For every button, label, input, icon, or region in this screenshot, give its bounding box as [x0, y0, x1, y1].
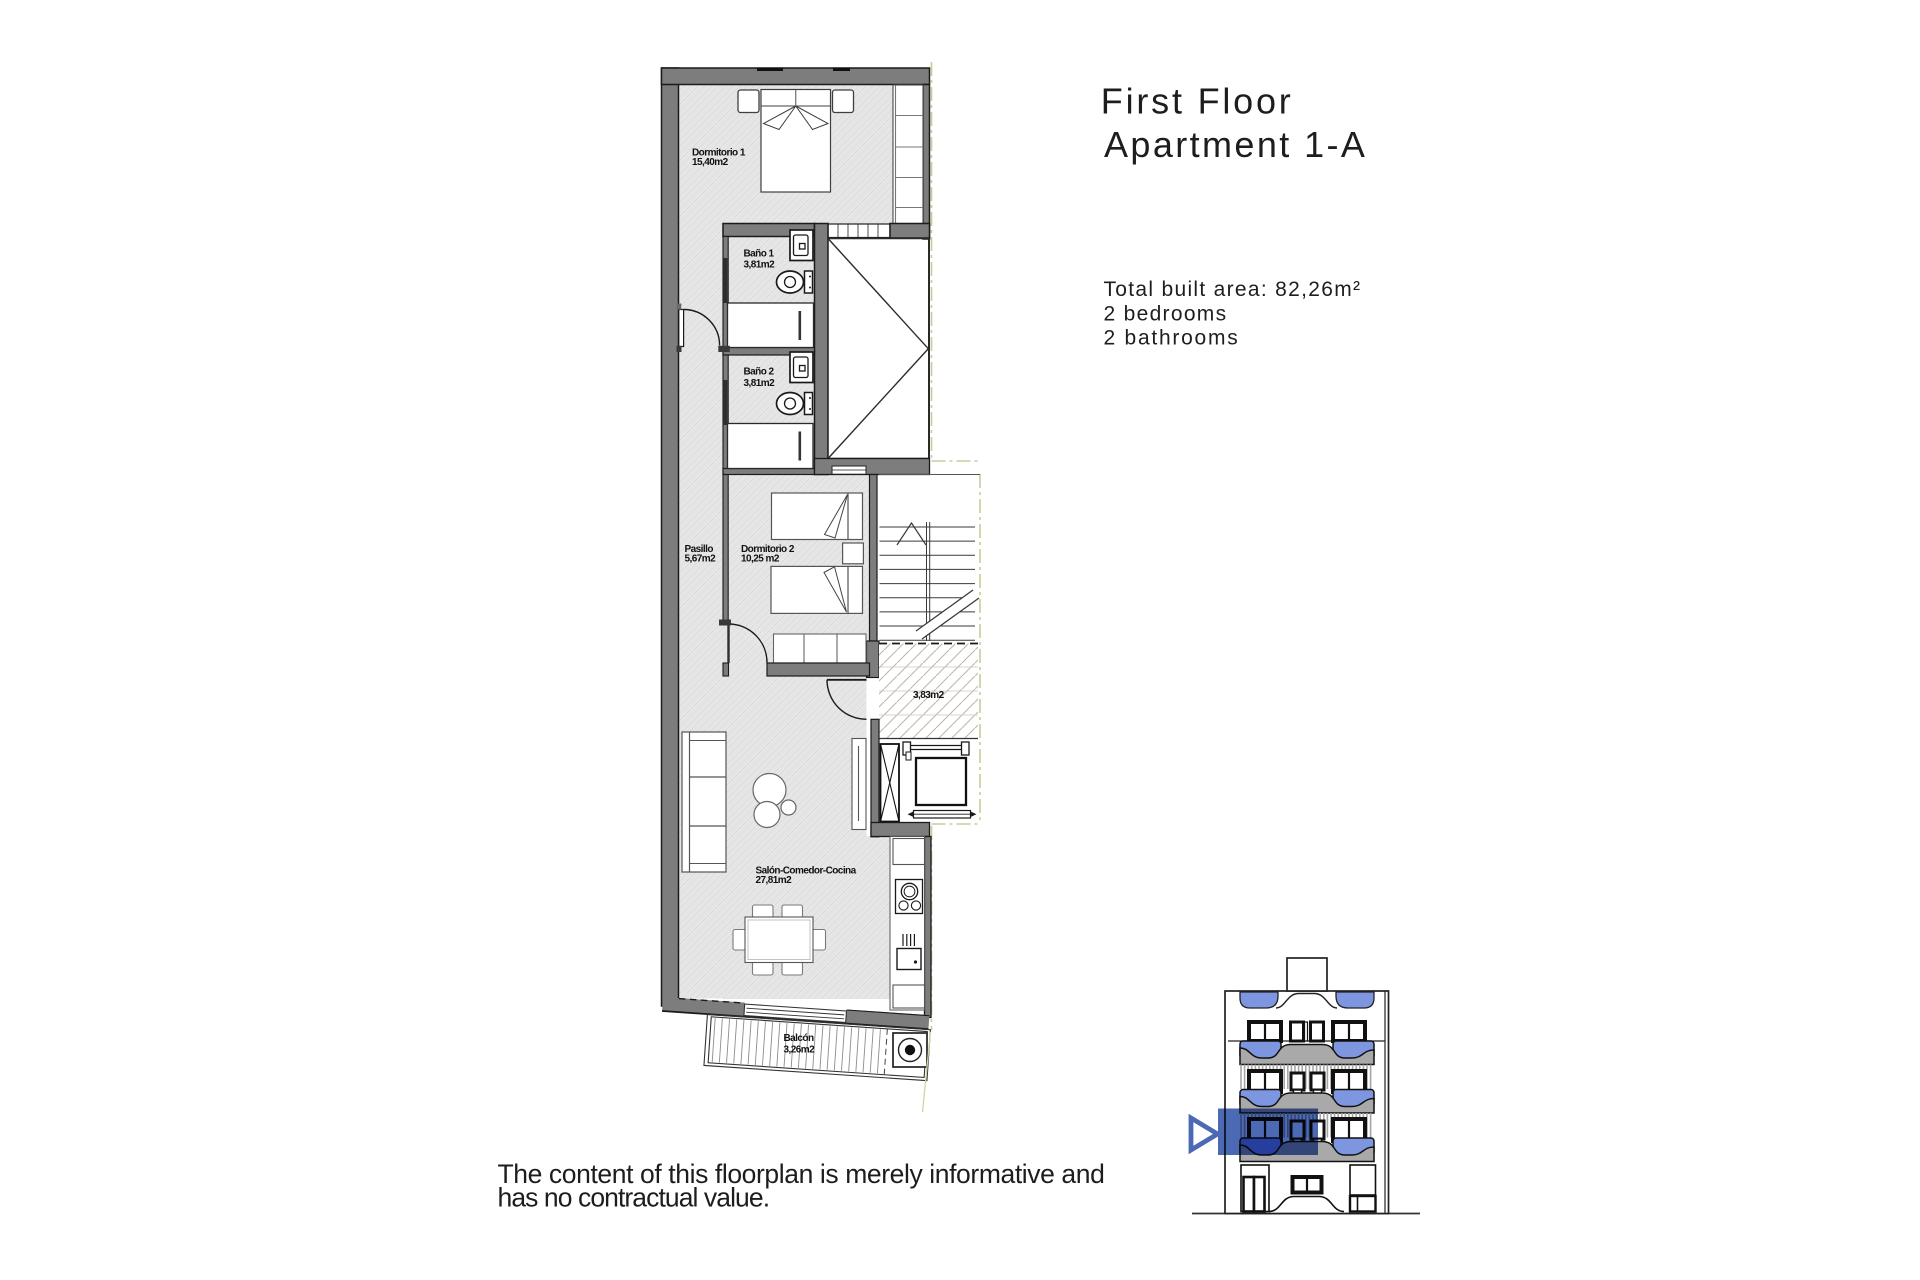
svg-text:First Floor: First Floor: [1101, 81, 1294, 122]
svg-text:3,83m2: 3,83m2: [913, 690, 945, 701]
svg-text:15,40m2: 15,40m2: [692, 157, 729, 168]
svg-text:Total built area: 82,26m²: Total built area: 82,26m²: [1104, 278, 1362, 301]
svg-text:Apartment 1-A: Apartment 1-A: [1104, 124, 1367, 165]
svg-text:3,81m2: 3,81m2: [744, 260, 776, 271]
svg-text:3,26m2: 3,26m2: [784, 1045, 816, 1056]
svg-text:10,25 m2: 10,25 m2: [741, 554, 780, 565]
svg-text:Baño 1: Baño 1: [744, 249, 775, 260]
svg-text:5,67m2: 5,67m2: [685, 554, 717, 565]
svg-text:2 bedrooms: 2 bedrooms: [1104, 303, 1228, 326]
svg-text:has no contractual value.: has no contractual value.: [498, 1183, 770, 1213]
svg-text:27,81m2: 27,81m2: [756, 875, 793, 886]
svg-text:3,81m2: 3,81m2: [744, 378, 776, 389]
svg-text:Baño 2: Baño 2: [744, 367, 775, 378]
svg-text:Balcón: Balcón: [784, 1033, 814, 1044]
svg-text:2 bathrooms: 2 bathrooms: [1104, 327, 1240, 350]
